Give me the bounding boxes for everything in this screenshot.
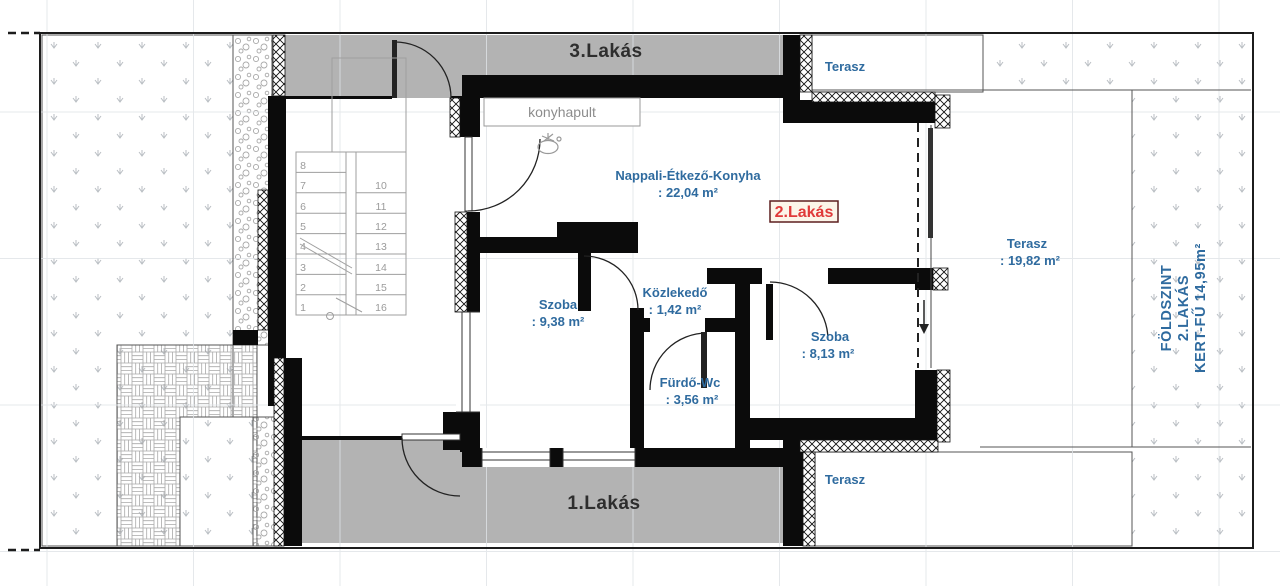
svg-text:Terasz: Terasz: [1007, 236, 1048, 251]
svg-text:13: 13: [375, 241, 387, 253]
garden-note-line1: FÖLDSZINT: [1158, 265, 1175, 352]
garden-note-line2: 2.LAKÁS: [1175, 275, 1192, 341]
paved-area: [117, 345, 277, 546]
svg-text:Fürdő-Wc: Fürdő-Wc: [660, 375, 721, 390]
window-left: [456, 312, 480, 412]
kitchen-counter: konyhapult: [484, 98, 640, 126]
unit2-label: 2.Lakás: [775, 204, 834, 221]
svg-text:12: 12: [375, 221, 387, 233]
svg-text:3: 3: [300, 262, 306, 274]
svg-text:: 3,56 m²: : 3,56 m²: [666, 392, 719, 407]
svg-text:16: 16: [375, 302, 387, 314]
unit3-label: 3.Lakás: [569, 41, 642, 62]
svg-text:Közlekedő: Közlekedő: [642, 285, 707, 300]
svg-text:: 8,13 m²: : 8,13 m²: [802, 346, 855, 361]
svg-text:5: 5: [300, 221, 306, 233]
unit3-band: [285, 35, 783, 75]
svg-text:: 1,42 m²: : 1,42 m²: [649, 302, 702, 317]
kitchen-counter-label: konyhapult: [528, 104, 596, 120]
terrace-bottom-label: Terasz: [825, 472, 866, 487]
svg-text:Nappali-Étkező-Konyha: Nappali-Étkező-Konyha: [615, 168, 761, 183]
svg-text:Szoba: Szoba: [811, 329, 850, 344]
unit1-label: 1.Lakás: [567, 493, 640, 514]
svg-text:: 22,04 m²: : 22,04 m²: [658, 185, 719, 200]
svg-text:: 19,82 m²: : 19,82 m²: [1000, 253, 1061, 268]
svg-text:Szoba: Szoba: [539, 297, 578, 312]
svg-text:8: 8: [300, 160, 306, 172]
svg-text:: 9,38 m²: : 9,38 m²: [532, 314, 585, 329]
garden-note-line3: KERT-FŰ 14,95m²: [1191, 243, 1209, 373]
svg-text:11: 11: [376, 201, 387, 213]
floor-plan-canvas: 8 7 6 5 4 3 2 1 10 11 12 13 14 15 16 kon…: [0, 0, 1280, 586]
svg-text:14: 14: [375, 262, 387, 274]
window-bottom-2: [563, 448, 635, 467]
svg-text:2: 2: [300, 282, 306, 294]
terrace-bottom-slab: [815, 452, 1132, 546]
unit2-tag: 2.Lakás: [770, 201, 838, 222]
svg-text:10: 10: [375, 180, 387, 192]
floor-plan-page: 8 7 6 5 4 3 2 1 10 11 12 13 14 15 16 kon…: [0, 0, 1280, 586]
svg-text:15: 15: [375, 282, 387, 294]
svg-text:7: 7: [300, 180, 306, 192]
svg-text:6: 6: [300, 201, 306, 213]
terrace-top-label: Terasz: [825, 59, 866, 74]
svg-text:4: 4: [300, 241, 306, 253]
svg-text:1: 1: [300, 302, 306, 314]
stair-numbers-right: 10 11 12 13 14 15 16: [375, 180, 387, 314]
window-bottom-1: [482, 448, 550, 467]
